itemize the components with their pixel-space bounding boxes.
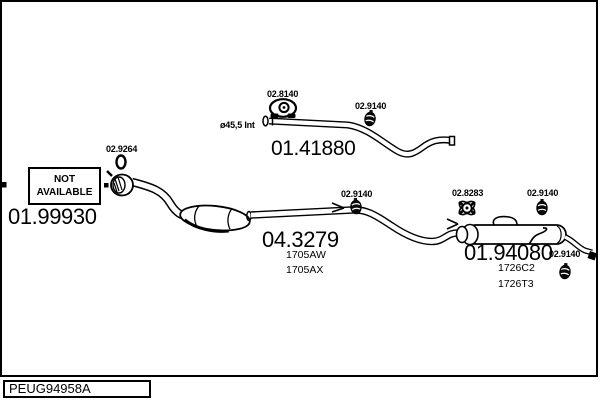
not-available-line2: AVAILABLE <box>37 186 93 199</box>
part-label-front-pipe[interactable]: 01.99930 <box>8 205 97 228</box>
not-available-line1: NOT <box>54 173 75 186</box>
top-pipe-diameter-note: ø45,5 Int <box>220 120 255 130</box>
front-flange-icon <box>107 171 133 196</box>
variant-label-cat-2: 1705AX <box>286 265 323 276</box>
part-label-hanger-top[interactable]: 02.8140 <box>267 89 298 99</box>
part-label-clamp-rear[interactable]: 02.9140 <box>527 188 558 198</box>
clamp-top-pipe-icon <box>364 109 376 126</box>
part-label-rear-silencer[interactable]: 01.94080 <box>464 241 553 264</box>
part-label-clamp-mid-pipe[interactable]: 02.9140 <box>341 189 372 199</box>
gasket-ring-icon <box>117 156 126 169</box>
clamp-rear-icon <box>537 199 547 215</box>
part-label-clamp-tailpipe[interactable]: 02.9140 <box>549 249 580 259</box>
catalog-code-box: PEUG94958A <box>3 380 151 398</box>
clamp-mid-pipe-icon <box>350 198 361 214</box>
weld-arrow-inlet <box>447 219 458 229</box>
variant-label-silencer-2: 1726T3 <box>498 279 534 290</box>
not-available-box: NOT AVAILABLE <box>28 167 101 205</box>
exhaust-diagram-page: NOT AVAILABLE 02.9264 01.99930 02.8140 ø… <box>0 0 600 400</box>
left-border-anchor <box>1 182 7 188</box>
part-label-hanger-rear[interactable]: 02.8283 <box>452 188 483 198</box>
catalytic-converter-drawing <box>179 202 251 234</box>
catalog-code: PEUG94958A <box>9 382 91 396</box>
part-label-clamp-top-pipe[interactable]: 02.9140 <box>355 101 386 111</box>
part-label-front-gasket[interactable]: 02.9264 <box>106 144 137 154</box>
box-anchor <box>104 183 109 188</box>
rubber-hanger-rear-icon <box>457 199 477 217</box>
part-label-top-pipe[interactable]: 01.41880 <box>271 137 355 160</box>
clamp-tailpipe-icon <box>559 263 571 280</box>
rubber-hanger-top-icon <box>270 99 296 118</box>
variant-label-cat-1: 1705AW <box>286 250 326 261</box>
variant-label-silencer-1: 1726C2 <box>498 263 535 274</box>
part-label-catalytic-converter[interactable]: 04.3279 <box>262 228 339 251</box>
